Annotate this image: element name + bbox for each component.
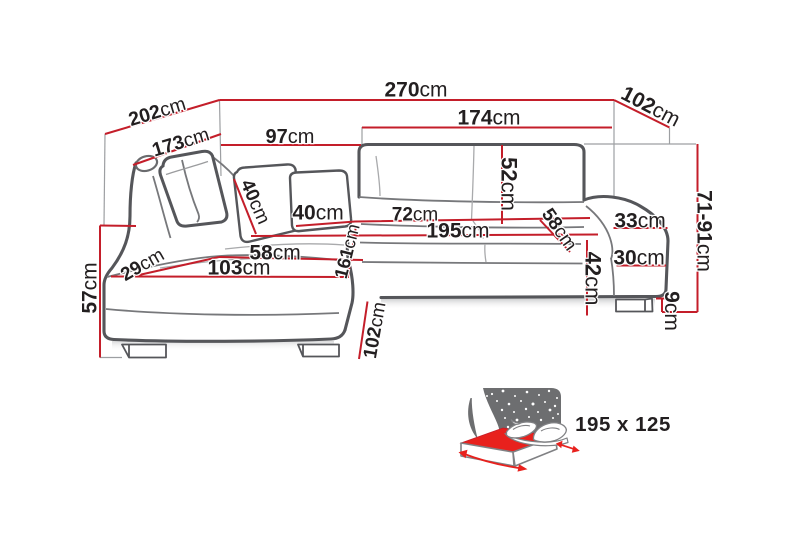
svg-text:174cm: 174cm [457, 106, 520, 129]
svg-text:270cm: 270cm [384, 78, 447, 101]
svg-text:103cm: 103cm [207, 256, 270, 279]
svg-text:9cm: 9cm [660, 291, 683, 331]
svg-text:57cm: 57cm [78, 262, 101, 313]
svg-text:52cm: 52cm [496, 157, 521, 211]
svg-text:33cm: 33cm [614, 210, 665, 233]
svg-text:40cm: 40cm [292, 201, 343, 224]
svg-text:195cm: 195cm [426, 219, 489, 242]
svg-text:71-91cm: 71-91cm [693, 190, 716, 272]
svg-text:42cm: 42cm [580, 252, 605, 306]
svg-text:195 x 125: 195 x 125 [575, 413, 671, 436]
svg-text:30cm: 30cm [613, 246, 664, 269]
svg-text:97cm: 97cm [266, 126, 315, 148]
